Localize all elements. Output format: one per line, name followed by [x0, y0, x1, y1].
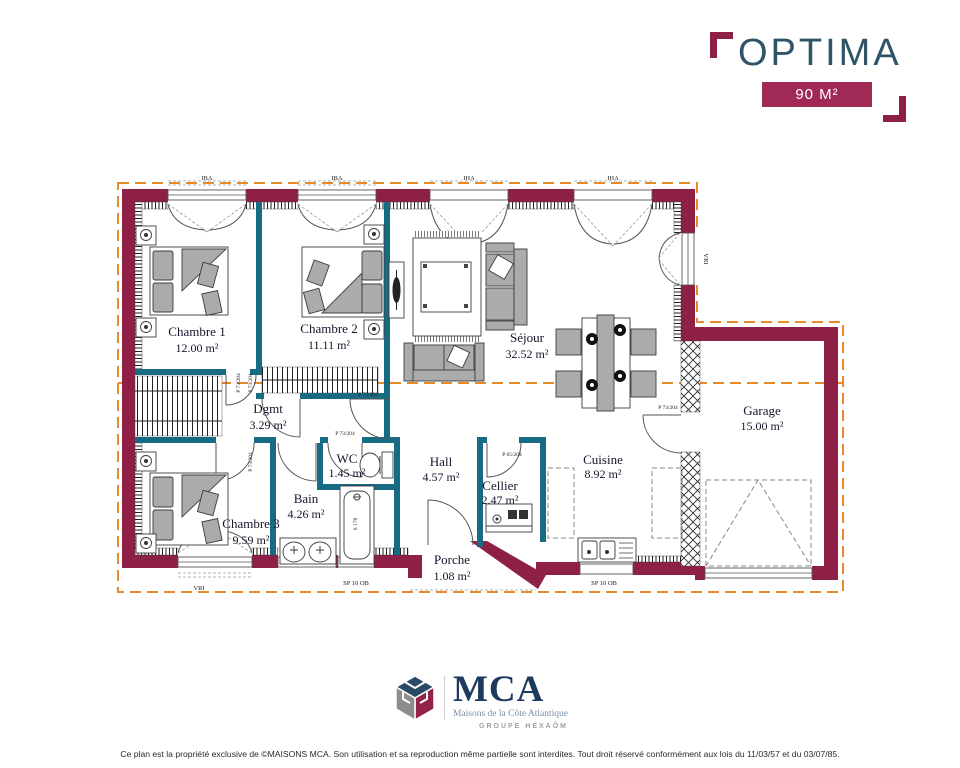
floor-plan-drawing: Chambre 1 12.00 m² Chambre 2 11.11 m² Sé… [0, 0, 960, 768]
door-label: P 65/204 [502, 452, 522, 458]
door-label: P 73/204 [248, 452, 254, 472]
logo-divider [444, 676, 445, 720]
bed [136, 452, 228, 553]
dining-table [556, 315, 656, 411]
room-label: WC [337, 451, 358, 466]
fixture-label: S 170 [353, 517, 359, 530]
door-label: P 73/204 [358, 392, 378, 398]
room-area: 8.92 m² [585, 467, 622, 481]
door-label: P 73/204 [236, 373, 242, 393]
window-label: IHA [463, 175, 475, 182]
window-label: SP 10 OB [591, 580, 617, 587]
kitchen-counter [548, 468, 682, 562]
door-label: P 73/204 [658, 405, 678, 411]
room-label: Garage [743, 403, 781, 418]
room-label: Bain [294, 491, 319, 506]
double-sink [280, 538, 336, 564]
room-label: Hall [430, 454, 453, 469]
window-label: IBA [331, 175, 343, 182]
room-area: 32.52 m² [506, 347, 549, 361]
room-area: 3.29 m² [250, 418, 287, 432]
room-label: Chambre 2 [300, 321, 357, 336]
tv-console [389, 262, 404, 318]
room-area: 4.57 m² [423, 470, 460, 484]
room-area: 11.11 m² [308, 338, 350, 352]
room-area: 1.08 m² [434, 569, 471, 583]
company-subtitle: Maisons de la Côte Atlantique [453, 709, 568, 719]
room-label: Chambre 3 [222, 516, 279, 531]
company-footer: MCA Maisons de la Côte Atlantique GROUPE… [0, 672, 960, 730]
room-area: 9.59 m² [233, 533, 270, 547]
mca-cube-logo-icon [392, 672, 438, 724]
window-label: VRI [193, 585, 204, 592]
window-label: VRI [702, 253, 709, 264]
bed [136, 226, 228, 337]
room-label: Séjour [510, 330, 545, 345]
floor-plan-page: OPTIMA 90 M² [0, 0, 960, 768]
room-label: Porche [434, 552, 470, 567]
company-group: GROUPE HEXAÔM [453, 723, 568, 730]
window-label: SP 10 OB [343, 580, 369, 587]
appliances [486, 504, 532, 532]
door-label: P 73/204 [248, 373, 254, 393]
sofa [404, 343, 484, 381]
room-area: 12.00 m² [176, 341, 219, 355]
room-label: Cuisine [583, 452, 623, 467]
room-area: 15.00 m² [741, 419, 784, 433]
room-area: 4.26 m² [288, 507, 325, 521]
rug [413, 231, 481, 342]
room-area: 2.47 m² [482, 493, 519, 507]
room-label: Cellier [482, 478, 518, 493]
copyright-disclaimer: Ce plan est la propriété exclusive de ©M… [0, 749, 960, 759]
room-label: Dgmt [253, 401, 283, 416]
sofa [486, 243, 527, 330]
window-label: IBA [201, 175, 213, 182]
room-area: 1.45 m² [329, 466, 366, 480]
company-name: MCA [453, 672, 568, 708]
room-label: Chambre 1 [168, 324, 225, 339]
door-label: P 73/204 [335, 431, 355, 437]
window-label: IHA [607, 175, 619, 182]
